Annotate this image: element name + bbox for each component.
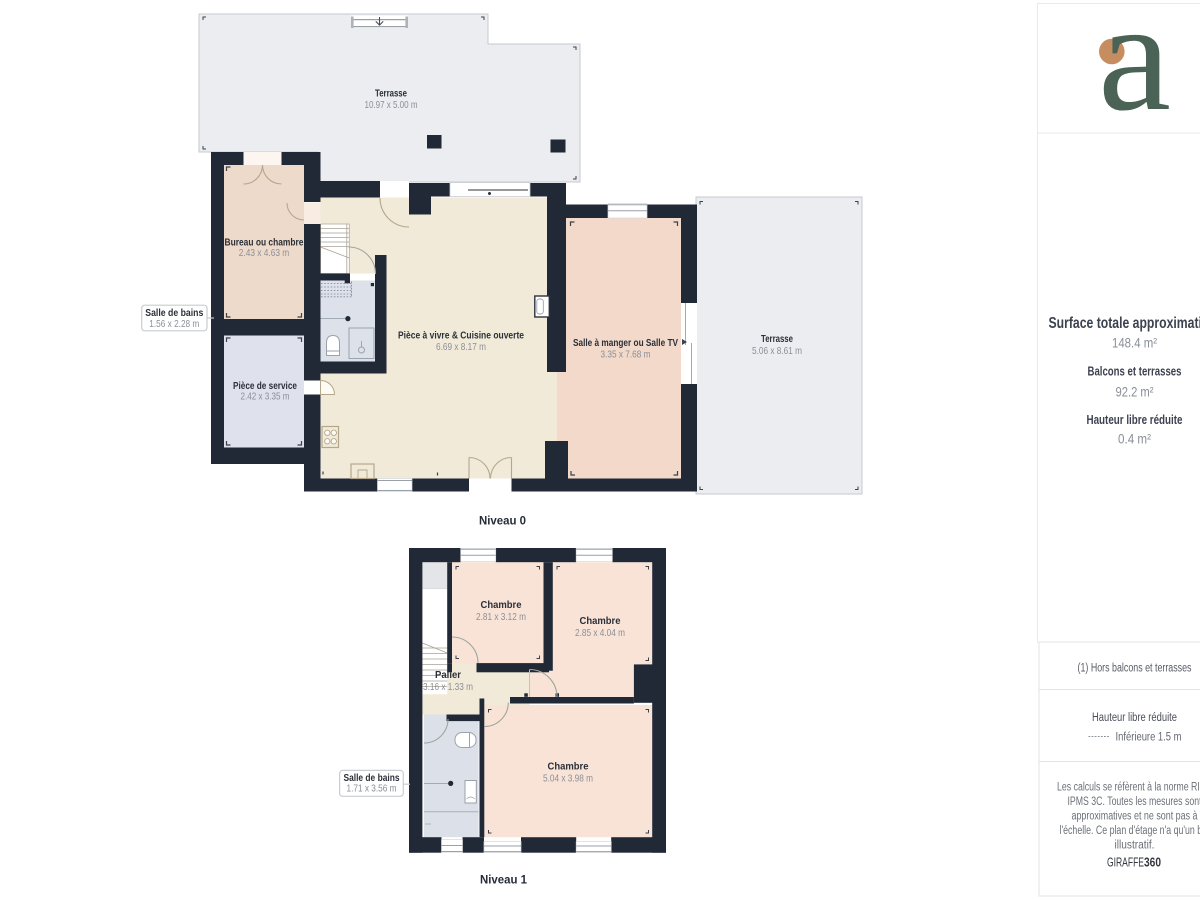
svg-text:Salle de bains: Salle de bains xyxy=(145,308,203,319)
svg-text:Niveau 0: Niveau 0 xyxy=(479,514,526,528)
svg-text:2.43 x 4.63 m: 2.43 x 4.63 m xyxy=(239,248,290,259)
svg-text:GIRAFFE360: GIRAFFE360 xyxy=(1107,856,1161,870)
svg-text:Pièce de service: Pièce de service xyxy=(233,381,297,392)
svg-text:Salle à manger ou Salle TV: Salle à manger ou Salle TV xyxy=(573,338,678,349)
svg-text:Palier: Palier xyxy=(435,670,461,681)
svg-text:Chambre: Chambre xyxy=(481,600,522,611)
svg-text:3.35 x 7.68 m: 3.35 x 7.68 m xyxy=(601,350,651,361)
svg-text:Niveau 1: Niveau 1 xyxy=(480,873,527,887)
svg-text:(1) Hors balcons et terrasses: (1) Hors balcons et terrasses xyxy=(1078,663,1192,675)
svg-text:3.16 x 1.33 m: 3.16 x 1.33 m xyxy=(423,682,473,693)
svg-text:Terrasse: Terrasse xyxy=(761,334,793,345)
svg-text:5.06 x 8.61 m: 5.06 x 8.61 m xyxy=(752,346,802,357)
svg-text:2.42 x 3.35 m: 2.42 x 3.35 m xyxy=(241,392,290,403)
svg-text:Chambre: Chambre xyxy=(548,762,589,773)
svg-text:Surface totale approximative: Surface totale approximative xyxy=(1049,315,1200,332)
svg-text:5.04 x 3.98 m: 5.04 x 3.98 m xyxy=(543,774,593,785)
svg-text:148.4 m²: 148.4 m² xyxy=(1112,336,1157,351)
svg-text:Chambre: Chambre xyxy=(580,616,621,627)
svg-text:1.56 x 2.28 m: 1.56 x 2.28 m xyxy=(149,319,199,330)
svg-text:1.71 x 3.56 m: 1.71 x 3.56 m xyxy=(347,784,397,795)
svg-text:92.2 m²: 92.2 m² xyxy=(1116,385,1154,400)
svg-text:Les calculs se réfèrent à la n: Les calculs se réfèrent à la norme RICS xyxy=(1057,782,1200,794)
svg-text:Salle de bains: Salle de bains xyxy=(344,773,400,784)
svg-text:IPMS 3C. Toutes les mesures so: IPMS 3C. Toutes les mesures sont xyxy=(1068,796,1200,808)
svg-text:Terrasse: Terrasse xyxy=(375,88,407,99)
svg-text:a: a xyxy=(1098,0,1171,144)
svg-text:Hauteur libre réduite: Hauteur libre réduite xyxy=(1092,712,1177,724)
svg-text:10.97 x 5.00 m: 10.97 x 5.00 m xyxy=(365,100,418,111)
svg-text:Bureau ou chambre: Bureau ou chambre xyxy=(225,238,304,249)
svg-text:approximatives et ne sont pas: approximatives et ne sont pas à xyxy=(1072,811,1198,823)
svg-text:6.69 x 8.17 m: 6.69 x 8.17 m xyxy=(436,342,486,353)
svg-text:l'échelle. Ce plan d'étage n'a: l'échelle. Ce plan d'étage n'a qu'un but xyxy=(1060,825,1200,837)
svg-text:Pièce à vivre & Cuisine ouvert: Pièce à vivre & Cuisine ouverte xyxy=(398,331,524,342)
svg-text:2.81 x 3.12 m: 2.81 x 3.12 m xyxy=(476,612,526,623)
svg-text:2.85 x 4.04 m: 2.85 x 4.04 m xyxy=(575,628,625,639)
svg-text:Inférieure 1.5 m: Inférieure 1.5 m xyxy=(1116,732,1182,744)
svg-text:0.4 m²: 0.4 m² xyxy=(1118,432,1151,447)
svg-text:illustratif.: illustratif. xyxy=(1115,840,1155,852)
svg-text:Hauteur libre réduite: Hauteur libre réduite xyxy=(1087,413,1183,427)
svg-text:Balcons et terrasses: Balcons et terrasses xyxy=(1088,365,1182,379)
